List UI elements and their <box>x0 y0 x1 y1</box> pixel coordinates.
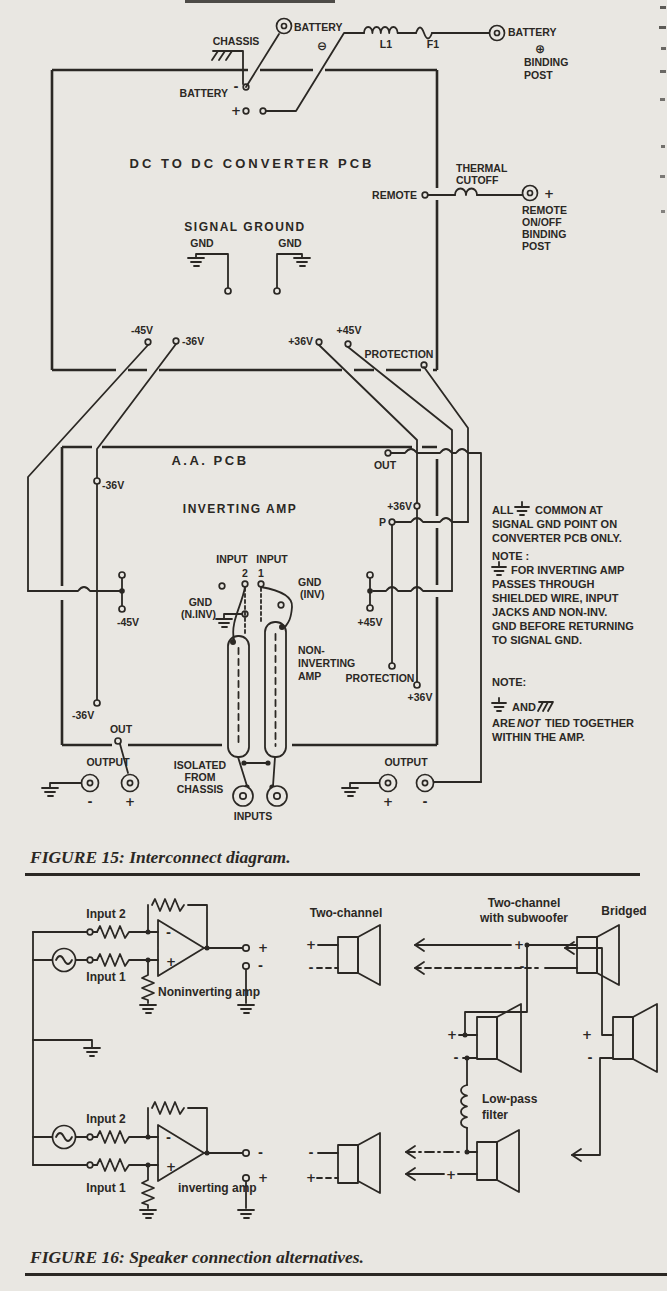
output-left-ground-icon <box>42 783 81 796</box>
figure16-caption: FIGURE 16: Speaker connection alternativ… <box>29 1247 364 1267</box>
output-left-neg-post <box>82 775 99 792</box>
lowpass-label1: Low-pass <box>482 1092 538 1106</box>
lowpass-label2: filter <box>482 1108 508 1122</box>
note3-heading: NOTE: <box>492 676 526 688</box>
note2-l3: SHIELDED WIRE, INPUT <box>492 592 619 604</box>
ground-icon <box>140 1210 156 1218</box>
aa-out-terminal <box>385 450 391 456</box>
input2-top-label: Input 2 <box>86 907 126 921</box>
interconnect-wires <box>28 344 481 782</box>
output-right-label: OUTPUT <box>384 756 428 768</box>
input2-num: 2 <box>242 567 248 579</box>
opamp-minus: - <box>166 1131 171 1145</box>
aa-pcb-title: A.A. PCB <box>171 453 248 468</box>
signal-ground-icon <box>515 502 529 515</box>
subwoofer-speaker-icon <box>477 1004 521 1072</box>
aa-pos36-label: +36V <box>387 500 412 512</box>
subwoofer-main-speaker-icon <box>577 925 619 985</box>
noninv-amp-label2: INVERTING <box>298 657 355 669</box>
ground-icon <box>238 1005 254 1013</box>
inputs-label: INPUTS <box>234 810 273 822</box>
aa-protection-terminal <box>389 663 395 669</box>
bridged-speaker-icon <box>613 1004 657 1072</box>
subwoofer-header-line2: with subwoofer <box>479 911 568 925</box>
conv-neg45-label: -45V <box>131 324 153 336</box>
chassis-label: CHASSIS <box>213 35 260 47</box>
figure15-interconnect-diagram: CHASSIS BATTERY - + BATTERY ⊖ L1 F1 <box>25 19 640 877</box>
spk2-plus: + <box>306 1171 316 1185</box>
noninv-amp-label3: AMP <box>298 670 321 682</box>
opamp-triangle-icon <box>158 1125 204 1181</box>
aa-p-label: P <box>379 516 386 528</box>
figure16-speaker-alternatives: - + + - Input 2 Input 1 Noninverting amp… <box>25 896 667 1276</box>
two-channel-speaker-icon <box>317 925 380 985</box>
input2-top-terminal <box>87 929 93 935</box>
circle-plus-icon: ⊕ <box>535 42 545 56</box>
ground-resistor <box>142 960 154 1003</box>
signal-source-bottom <box>33 1126 87 1149</box>
conv-pos36-label: +36V <box>288 335 313 347</box>
shielded-cables <box>228 622 286 757</box>
bridged-plus: + <box>582 1028 592 1042</box>
lowpass-inductor-icon <box>461 1085 467 1128</box>
note3-tied: TIED TOGETHER <box>545 717 634 729</box>
subwoofer-header-line1: Two-channel <box>488 896 560 910</box>
binding-label: BINDING <box>524 56 568 68</box>
note3-and: AND <box>512 701 536 713</box>
rule-after-fig16 <box>25 1273 667 1276</box>
signal-ground-icon <box>492 698 506 711</box>
subwoofer-minus: - <box>454 1051 459 1065</box>
remote-post-line2: ON/OFF <box>522 216 562 228</box>
input-jack-right <box>267 786 287 806</box>
remote-post-line3: BINDING <box>522 228 566 240</box>
isolated-label3: CHASSIS <box>177 783 224 795</box>
input1-word: INPUT <box>256 553 288 565</box>
note3-within: WITHIN THE AMP. <box>492 731 585 743</box>
note2-l4: JACKS AND NON-INV. <box>492 606 607 618</box>
input2-bot-label: Input 2 <box>86 1112 126 1126</box>
output-right-neg-post <box>417 775 434 792</box>
sub-top-minus: - <box>520 960 525 974</box>
remote-terminal <box>422 192 428 198</box>
sub-top-plus: + <box>514 938 524 952</box>
gnd-inv-label1: GND <box>298 576 322 588</box>
inverting-speaker-icon <box>317 1133 380 1193</box>
ground-icon <box>238 1210 254 1218</box>
remote-post-line4: POST <box>522 240 551 252</box>
bridged-header: Bridged <box>601 904 646 918</box>
thermal-cutoff-icon <box>428 188 522 195</box>
amp-out-pos-terminal <box>243 945 249 951</box>
input1-top-label: Input 1 <box>86 970 126 984</box>
thermal-label1: THERMAL <box>456 162 508 174</box>
amp-out-neg-terminal <box>243 1150 249 1156</box>
output-left-pos-post <box>122 775 139 792</box>
output-right-ground-icon <box>342 783 379 796</box>
resistor-icon <box>97 1131 132 1143</box>
signal-ground-icon <box>492 562 506 575</box>
aa-pos36-terminal <box>414 503 420 509</box>
sub-bottom-plus: + <box>446 1168 456 1182</box>
note-common: COMMON AT <box>535 504 603 516</box>
output-right-plus: + <box>383 795 393 809</box>
aa-pos45-node <box>367 572 373 611</box>
spare-terminal <box>219 583 225 589</box>
note2-l2: PASSES THROUGH <box>492 578 595 590</box>
subwoofer-plus: + <box>447 1028 457 1042</box>
input1-bot-label: Input 1 <box>86 1181 126 1195</box>
battery-neg-binding-post <box>277 19 292 34</box>
output-right-pos-post <box>380 775 397 792</box>
ground-icon <box>140 1005 156 1013</box>
conv-neg36-label: -36V <box>182 335 204 347</box>
gnd-ninv-label2: (N.INV) <box>181 608 216 620</box>
remote-post-plus: + <box>544 187 554 201</box>
input2-terminal <box>242 581 248 587</box>
input1-terminal <box>258 581 264 587</box>
spk2-minus: - <box>309 1146 314 1160</box>
aa-pos45-label: +45V <box>358 616 383 628</box>
remote-post-line1: REMOTE <box>522 204 567 216</box>
noninverting-amp-label: Noninverting amp <box>158 985 260 999</box>
two-channel-header: Two-channel <box>310 906 382 920</box>
bridged-minus: - <box>588 1051 593 1065</box>
rule-after-fig15 <box>25 873 640 876</box>
inverting-amp-title: INVERTING AMP <box>183 502 297 516</box>
battery-pos-terminal <box>243 108 249 114</box>
opamp-minus: - <box>166 926 171 940</box>
conv-neg45-terminal <box>145 339 151 345</box>
gnd-inv-terminal <box>278 602 284 608</box>
inductor-L1-icon <box>364 27 398 33</box>
battery-left-minus: - <box>234 80 239 94</box>
input1-bot-terminal <box>87 1162 93 1168</box>
note-all: ALL <box>492 504 514 516</box>
scan-artifacts <box>185 0 666 213</box>
note2-l1: FOR INVERTING AMP <box>511 564 624 576</box>
aa-neg36-label: -36V <box>102 479 124 491</box>
battery-left-plus: + <box>231 104 241 118</box>
feedback-resistor <box>148 899 207 948</box>
gnd-left-label: GND <box>190 237 214 249</box>
feedback-resistor <box>148 1102 207 1153</box>
output-left-minus: - <box>88 795 93 809</box>
scanned-page: CHASSIS BATTERY - + BATTERY ⊖ L1 F1 <box>0 0 667 1291</box>
resistor-icon <box>97 954 132 966</box>
input2-bot-terminal <box>87 1134 93 1140</box>
f1-label: F1 <box>427 38 439 50</box>
conv-pos45-terminal <box>345 341 351 347</box>
fuse-F1-icon <box>416 28 432 39</box>
ground-resistor <box>142 1165 154 1208</box>
out-neg-sign: - <box>258 1146 263 1160</box>
signal-ground-left-icon <box>188 254 231 294</box>
aa-neg36-bottom-label: -36V <box>72 709 94 721</box>
chassis-ground-icon <box>538 702 553 711</box>
l1-label: L1 <box>380 38 392 50</box>
resistor-icon <box>97 926 132 938</box>
input2-word: INPUT <box>216 553 248 565</box>
post-label: POST <box>524 69 553 81</box>
out-neg-sign: - <box>258 959 263 973</box>
spk1-plus: + <box>306 938 316 952</box>
inverting-amp-label: inverting amp <box>178 1181 257 1195</box>
remote-label: REMOTE <box>372 189 417 201</box>
figure15-caption: FIGURE 15: Interconnect diagram. <box>29 847 291 867</box>
aa-pos36-bottom-label: +36V <box>408 691 433 703</box>
isolated-label1: ISOLATED <box>174 759 227 771</box>
aa-out-label: OUT <box>374 459 397 471</box>
aa-neg45-label: -45V <box>117 616 139 628</box>
output-right-minus: - <box>423 795 428 809</box>
input-jack-left <box>233 786 253 806</box>
aa-out-bottom-terminal <box>115 738 121 744</box>
aa-neg36-bottom-terminal <box>94 700 100 706</box>
out-pos-sign: + <box>258 941 268 955</box>
spk1-minus: - <box>309 961 314 975</box>
subwoofer-second-speaker-icon <box>477 1130 519 1192</box>
input1-num: 1 <box>258 567 264 579</box>
note2-l6: TO SIGNAL GND. <box>492 634 582 646</box>
note3-not: NOT <box>517 717 542 729</box>
inverting-amp-circuit <box>33 1102 254 1218</box>
output-left-label: OUTPUT <box>86 756 130 768</box>
output-left-plus: + <box>125 795 135 809</box>
remote-binding-post <box>523 186 538 201</box>
aa-protection-label: PROTECTION <box>346 672 415 684</box>
aa-neg36-terminal <box>94 478 100 484</box>
note-line3: CONVERTER PCB ONLY. <box>492 532 622 544</box>
resistor-icon <box>97 1159 132 1171</box>
amp-out-neg-terminal <box>243 963 249 969</box>
conv-pos45-label: +45V <box>337 324 362 336</box>
opamp-triangle-icon <box>158 920 204 976</box>
input1-top-terminal <box>87 957 93 963</box>
battery-pos-terminal2 <box>260 108 266 114</box>
signal-ground-right-icon <box>274 254 310 294</box>
gnd-right-label: GND <box>278 237 302 249</box>
battery-neg-post-label: BATTERY <box>294 21 342 33</box>
conv-pos36-terminal <box>316 339 322 345</box>
out-pos-sign: + <box>258 1171 268 1185</box>
signal-ground-title: SIGNAL GROUND <box>184 220 305 234</box>
signal-source-top <box>33 949 87 972</box>
note2-l5: GND BEFORE RETURNING <box>492 620 634 632</box>
cable-to-jack-wires <box>238 757 275 790</box>
conv-neg36-terminal <box>173 338 179 344</box>
converter-title: DC TO DC CONVERTER PCB <box>130 156 375 171</box>
circle-minus-icon: ⊖ <box>317 39 327 53</box>
gnd-inv-label2: (INV) <box>300 588 325 600</box>
aa-pos36-bottom-terminal <box>414 682 420 688</box>
opamp-plus: + <box>166 1160 176 1174</box>
battery-pos-binding-post <box>490 26 505 41</box>
conv-protection-label: PROTECTION <box>365 348 434 360</box>
notes: ALL COMMON AT SIGNAL GND POINT ON CONVER… <box>492 502 634 743</box>
aa-out-bottom-label: OUT <box>110 723 133 735</box>
gnd-ninv-ground-icon <box>216 614 242 627</box>
note1-heading: NOTE : <box>492 550 529 562</box>
battery-pos-post-label: BATTERY <box>508 26 556 38</box>
noninv-amp-label1: NON- <box>298 644 325 656</box>
note3-are: ARE <box>492 717 515 729</box>
battery-left-label: BATTERY <box>180 87 228 99</box>
figures-canvas: CHASSIS BATTERY - + BATTERY ⊖ L1 F1 <box>0 0 667 1291</box>
thermal-label2: CUTOFF <box>456 174 499 186</box>
note-line2: SIGNAL GND POINT ON <box>492 518 617 530</box>
aa-neg45-node <box>119 572 125 612</box>
aa-p-terminal <box>389 519 395 525</box>
gnd-ninv-label1: GND <box>189 596 213 608</box>
opamp-plus: + <box>166 955 176 969</box>
isolated-label2: FROM <box>185 771 216 783</box>
